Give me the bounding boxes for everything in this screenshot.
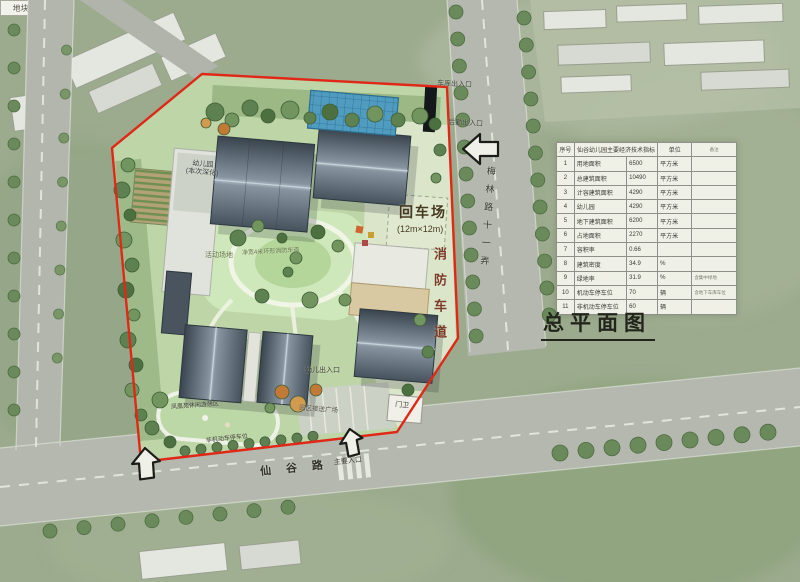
tree-icon: [213, 507, 227, 521]
tree-icon: [578, 442, 594, 458]
tree-icon: [8, 24, 20, 36]
table-cell: 8: [557, 257, 575, 271]
table-title: 仙谷幼儿园主要经济技术指标: [574, 143, 657, 157]
table-row: 5地下建筑面积6200平方米: [557, 214, 737, 228]
table-row: 1用地面积6500平方米: [557, 157, 737, 171]
tree-icon: [43, 524, 57, 538]
table-cell: 4290: [627, 185, 658, 199]
tree-icon: [402, 384, 414, 396]
col-note: 备注: [692, 143, 737, 157]
tree-icon: [58, 177, 68, 187]
tree-icon: [255, 289, 269, 303]
tree-icon: [152, 392, 168, 408]
table-cell: 0.66: [627, 243, 658, 257]
tree-icon: [261, 109, 275, 123]
tree-icon: [277, 233, 287, 243]
tree-icon: [8, 176, 20, 188]
tree-icon: [8, 328, 20, 340]
tree-icon: [434, 144, 446, 156]
tree-icon: [540, 281, 554, 295]
table-cell: %: [658, 257, 692, 271]
table-cell: [692, 185, 737, 199]
tree-icon: [538, 254, 552, 268]
table-cell: [692, 157, 737, 171]
tree-icon: [283, 267, 293, 277]
tree-icon: [517, 11, 531, 25]
tree-icon: [54, 309, 64, 319]
tree-icon: [451, 32, 465, 46]
tree-icon: [552, 445, 568, 461]
tree-icon: [528, 146, 542, 160]
table-row: 4幼儿园4290平方米: [557, 200, 737, 214]
tree-icon: [682, 432, 698, 448]
tree-icon: [252, 220, 264, 232]
tree-icon: [322, 104, 338, 120]
tree-icon: [734, 427, 750, 443]
tree-icon: [449, 5, 463, 19]
table-cell: 4: [557, 200, 575, 214]
tree-icon: [8, 404, 20, 416]
tree-icon: [464, 248, 478, 262]
table-cell: 含地下车库车位: [692, 285, 737, 299]
child-entrance-label: 幼儿出入口: [305, 367, 340, 375]
tree-icon: [412, 108, 428, 124]
tree-icon: [308, 431, 318, 441]
tree-icon: [310, 384, 322, 396]
table-cell: 平方米: [658, 214, 692, 228]
table-cell: [692, 200, 737, 214]
tree-icon: [247, 504, 261, 518]
tree-icon: [467, 302, 481, 316]
table-cell: [692, 214, 737, 228]
tree-icon: [391, 113, 405, 127]
tree-icon: [116, 232, 132, 248]
tree-icon: [332, 240, 344, 252]
tree-icon: [8, 290, 20, 302]
table-row: 8建筑密度34.9%: [557, 257, 737, 271]
tree-icon: [429, 118, 441, 130]
table-cell: [692, 171, 737, 185]
table-cell: 平方米: [658, 171, 692, 185]
indicator-table-header: 序号 仙谷幼儿园主要经济技术指标 单位 备注: [557, 143, 737, 157]
building-north-west: [210, 136, 314, 232]
fire-lane-label: 消防车道: [431, 247, 446, 351]
building-north-east: [313, 128, 411, 206]
tree-icon: [242, 100, 258, 116]
tree-icon: [276, 435, 286, 445]
tree-icon: [180, 446, 190, 456]
tree-icon: [125, 383, 139, 397]
tree-icon: [708, 429, 724, 445]
site-plan-image: 回车场 (12m×12m) 消防车道 车库出入口 后勤出入口 梅林路十一弄 仙谷…: [0, 0, 800, 582]
table-cell: 地下建筑面积: [574, 214, 626, 228]
table-cell: 9: [557, 271, 575, 285]
col-no: 序号: [557, 143, 575, 157]
tree-icon: [604, 440, 620, 456]
table-cell: %: [658, 271, 692, 285]
tree-icon: [179, 510, 193, 524]
table-cell: 6200: [627, 214, 658, 228]
table-row: 9绿地率31.9%含集中绿地: [557, 271, 737, 285]
tree-icon: [519, 38, 533, 52]
table-cell: 幼儿园: [574, 200, 626, 214]
tree-icon: [302, 292, 318, 308]
table-cell: 34.9: [627, 257, 658, 271]
table-cell: 31.9: [627, 271, 658, 285]
tree-icon: [531, 173, 545, 187]
table-cell: 2: [557, 171, 575, 185]
tree-icon: [431, 173, 441, 183]
tree-icon: [56, 221, 66, 231]
turnaround-label: 回车场: [399, 204, 447, 220]
tree-icon: [367, 106, 383, 122]
tree-icon: [8, 138, 20, 150]
tree-icon: [8, 100, 20, 112]
tree-icon: [77, 521, 91, 535]
tree-icon: [281, 101, 299, 119]
table-row: 7容积率0.66: [557, 243, 737, 257]
tree-icon: [462, 221, 476, 235]
tree-icon: [121, 158, 135, 172]
tree-icon: [111, 517, 125, 531]
tree-icon: [52, 353, 62, 363]
tree-icon: [292, 433, 302, 443]
tree-icon: [345, 113, 359, 127]
tree-icon: [8, 62, 20, 74]
tree-icon: [120, 332, 136, 348]
table-cell: 建筑密度: [574, 257, 626, 271]
tree-icon: [206, 103, 224, 121]
tree-icon: [260, 437, 270, 447]
tree-icon: [128, 309, 140, 321]
drawing-title: 总平面图: [541, 307, 655, 341]
table-cell: 2270: [627, 228, 658, 242]
table-cell: 用地面积: [574, 157, 626, 171]
tree-icon: [8, 214, 20, 226]
table-row: 6占地面积2270平方米: [557, 228, 737, 242]
table-cell: 10490: [627, 171, 658, 185]
tree-icon: [533, 200, 547, 214]
tree-icon: [459, 167, 473, 181]
tree-icon: [526, 119, 540, 133]
table-cell: 平方米: [658, 228, 692, 242]
tree-icon: [656, 435, 672, 451]
tree-icon: [339, 294, 351, 306]
tree-icon: [125, 258, 139, 272]
table-cell: 1: [557, 157, 575, 171]
table-cell: [692, 300, 737, 314]
tree-icon: [535, 227, 549, 241]
table-cell: 70: [627, 285, 658, 299]
tree-icon: [60, 89, 70, 99]
tree-icon: [630, 437, 646, 453]
table-cell: 含集中绿地: [692, 271, 737, 285]
tree-icon: [145, 514, 159, 528]
table-cell: 绿地率: [574, 271, 626, 285]
tree-icon: [218, 123, 230, 135]
tree-icon: [311, 225, 325, 239]
turnaround-size-label: (12m×12m): [397, 224, 443, 234]
table-cell: 5: [557, 214, 575, 228]
tree-icon: [304, 112, 316, 124]
table-cell: 7: [557, 243, 575, 257]
table-cell: 机动车停车位: [574, 285, 626, 299]
tree-icon: [164, 436, 176, 448]
col-unit: 单位: [658, 143, 692, 157]
table-cell: 6500: [627, 157, 658, 171]
tree-icon: [145, 421, 159, 435]
tree-icon: [230, 230, 246, 246]
tree-icon: [452, 59, 466, 73]
table-cell: 10: [557, 285, 575, 299]
table-cell: 3: [557, 185, 575, 199]
tree-icon: [8, 366, 20, 378]
tree-icon: [8, 252, 20, 264]
activity-field-label: 活动场地: [205, 252, 233, 260]
table-cell: 辆: [658, 300, 692, 314]
tree-icon: [760, 424, 776, 440]
table-cell: 容积率: [574, 243, 626, 257]
tree-icon: [196, 444, 206, 454]
table-cell: 平方米: [658, 157, 692, 171]
table-cell: 6: [557, 228, 575, 242]
indicator-table: 序号 仙谷幼儿园主要经济技术指标 单位 备注 1用地面积6500平方米2总建筑面…: [556, 142, 737, 315]
tree-icon: [414, 314, 426, 326]
table-cell: 总建筑面积: [574, 171, 626, 185]
table-cell: 平方米: [658, 185, 692, 199]
table-cell: [692, 257, 737, 271]
table-row: 10机动车停车位70辆含地下车库车位: [557, 285, 737, 299]
building-name-label: 幼儿园 (本次深化): [185, 160, 219, 179]
table-cell: [692, 243, 737, 257]
table-cell: 辆: [658, 285, 692, 299]
table-cell: [692, 228, 737, 242]
tree-icon: [201, 118, 211, 128]
building-south-west: [179, 325, 313, 409]
tree-icon: [265, 403, 275, 413]
tree-icon: [62, 45, 72, 55]
tree-icon: [524, 92, 538, 106]
tree-icon: [469, 329, 483, 343]
tree-icon: [59, 133, 69, 143]
table-cell: 占地面积: [574, 228, 626, 242]
table-row: 3计容建筑面积4290平方米: [557, 185, 737, 199]
table-cell: 4290: [627, 200, 658, 214]
table-cell: [658, 243, 692, 257]
table-cell: 平方米: [658, 200, 692, 214]
tree-icon: [55, 265, 65, 275]
tree-icon: [281, 500, 295, 514]
guard-house-label: 门卫: [395, 401, 410, 410]
tree-icon: [466, 275, 480, 289]
tree-icon: [275, 385, 289, 399]
table-cell: 计容建筑面积: [574, 185, 626, 199]
tree-icon: [522, 65, 536, 79]
tree-icon: [124, 209, 136, 221]
tree-icon: [461, 194, 475, 208]
table-row: 2总建筑面积10490平方米: [557, 171, 737, 185]
